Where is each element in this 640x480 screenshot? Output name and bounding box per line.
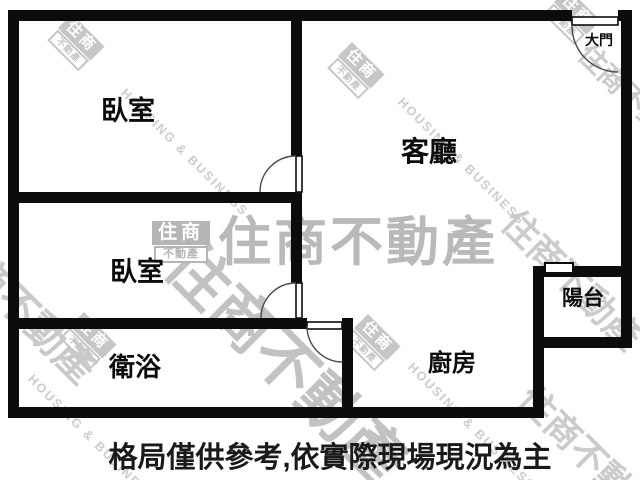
wall-top-left [8,10,572,21]
wall-balcony-bottom [533,337,632,348]
wall-bottom [8,407,544,418]
wall-right [621,10,632,348]
balcony-window [545,263,573,273]
floorplan-drawing: 臥室 臥室 客廳 衛浴 廚房 陽台 大門 [0,0,640,480]
bedroom2-door-arc [261,283,296,318]
wall-balcony-west [533,266,544,418]
bedroom2-door-leaf [296,283,302,318]
floorplan-page: 住商 不動產 住商 不動產 住商 不動產 住商 不動產 住商 不動產 HOUSI… [0,0,640,480]
walls [8,10,632,418]
room-label-main-door: 大門 [585,32,613,48]
room-label-balcony: 陽台 [562,286,604,310]
wall-bathroom-north [8,318,307,329]
wall-bedrooms-east-lower [291,192,302,283]
bathroom-door-arc [307,326,343,362]
room-label-kitchen: 廚房 [428,349,476,377]
wall-bedroom-divider [8,192,302,203]
wall-left [8,10,19,418]
room-label-living-room: 客廳 [401,135,457,167]
wall-bedrooms-east-upper [291,10,302,156]
room-label-bedroom-2: 臥室 [110,256,164,287]
caption-disclaimer: 格局僅供參考,依實際現場現況為主 [0,434,640,476]
door-arcs [260,26,618,362]
main-door-leaf [572,17,618,25]
room-label-bedroom-1: 臥室 [101,95,155,126]
room-label-bathroom: 衛浴 [108,352,162,382]
wall-kitchen-west [342,318,353,407]
door-leaves [296,17,618,329]
bedroom1-door-arc [260,156,296,192]
bathroom-door-leaf [307,322,342,329]
bedroom1-door-leaf [296,156,302,192]
